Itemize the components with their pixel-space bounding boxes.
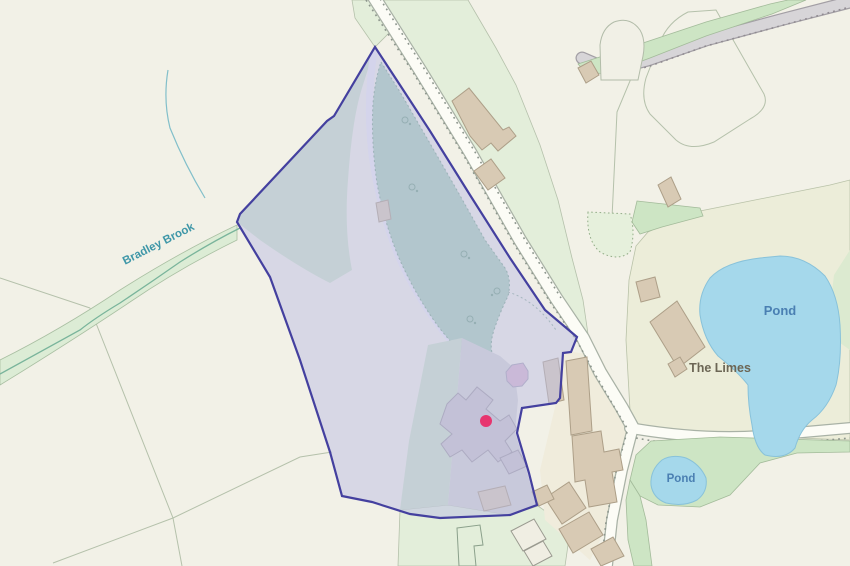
the-limes-label: The Limes xyxy=(689,361,751,375)
building xyxy=(566,357,592,435)
building xyxy=(636,277,660,302)
pond-upper-label: Pond xyxy=(764,303,797,318)
pond-lower-label: Pond xyxy=(667,473,696,485)
paddock xyxy=(600,20,644,80)
map-viewport[interactable]: Bradley Brook Pond The Limes Pond xyxy=(0,0,850,566)
map-canvas: Bradley Brook Pond The Limes Pond xyxy=(0,0,850,566)
property-marker[interactable] xyxy=(480,415,492,427)
